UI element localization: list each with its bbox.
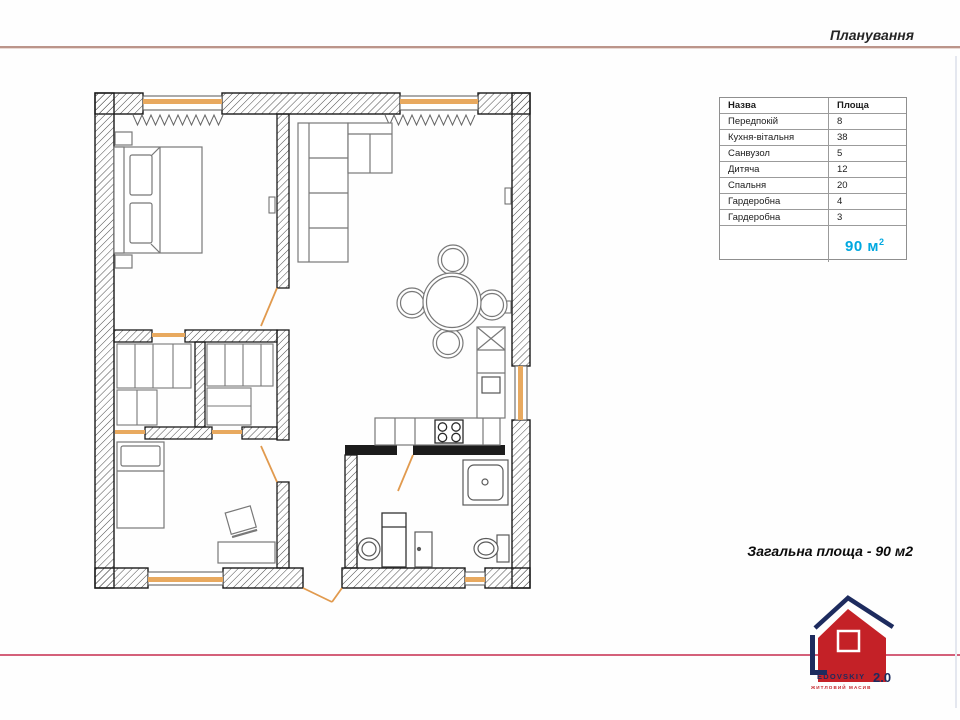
room-name: Гардеробна	[720, 194, 829, 209]
toilet	[474, 535, 509, 562]
table-header-name: Назва	[720, 98, 829, 113]
room-name: Санвузол	[720, 146, 829, 161]
table-row: Санвузол 5	[720, 145, 906, 161]
table-header-area: Площа	[829, 98, 906, 113]
logo-name: EDOVSKIY	[817, 672, 865, 681]
room-name: Гардеробна	[720, 210, 829, 225]
room-area: 12	[829, 162, 906, 177]
bedroom-bed	[114, 132, 202, 268]
total-area-caption: Загальна площа - 90 м2	[747, 543, 913, 559]
room-area: 20	[829, 178, 906, 193]
child-bed	[117, 442, 164, 528]
total-area-value: 90 м2	[837, 234, 884, 254]
page-edge-line	[955, 56, 957, 708]
area-table: Назва Площа Передпокій 8 Кухня-вітальня …	[719, 97, 907, 260]
bathroom-door	[415, 532, 432, 567]
table-row: Передпокій 8	[720, 113, 906, 129]
shower	[463, 460, 508, 505]
table-row: Гардеробна 3	[720, 209, 906, 225]
room-name: Спальня	[720, 178, 829, 193]
room-area: 5	[829, 146, 906, 161]
table-row: Гардеробна 4	[720, 193, 906, 209]
room-area: 38	[829, 130, 906, 145]
table-row: Кухня-вітальня 38	[720, 129, 906, 145]
logo-tagline: ЖИТЛОВИЙ МАСИВ	[810, 683, 872, 690]
corner-sofa	[298, 123, 392, 262]
table-total-row: 90 м2	[720, 225, 906, 259]
table-row: Спальня 20	[720, 177, 906, 193]
room-area: 4	[829, 194, 906, 209]
desk-and-chair	[218, 506, 275, 563]
logo-version: 2.0	[873, 670, 891, 685]
kitchen-back-wall	[345, 445, 505, 455]
room-name: Передпокій	[720, 114, 829, 129]
house-logo-icon: EDOVSKIY 2.0 ЖИТЛОВИЙ МАСИВ	[798, 590, 904, 702]
bathroom-cabinet	[382, 513, 406, 567]
logo-letter-l	[810, 635, 815, 675]
room-name: Дитяча	[720, 162, 829, 177]
page: Планування	[0, 0, 960, 720]
room-area: 3	[829, 210, 906, 225]
company-logo: EDOVSKIY 2.0 ЖИТЛОВИЙ МАСИВ	[798, 590, 904, 702]
stove-icon	[435, 420, 463, 443]
room-name: Кухня-вітальня	[720, 130, 829, 145]
washing-machine	[358, 538, 380, 560]
room-area: 8	[829, 114, 906, 129]
table-header-row: Назва Площа	[720, 98, 906, 113]
floor-plan	[85, 85, 545, 615]
header-rule	[0, 46, 960, 48]
page-title: Планування	[830, 27, 914, 43]
table-row: Дитяча 12	[720, 161, 906, 177]
